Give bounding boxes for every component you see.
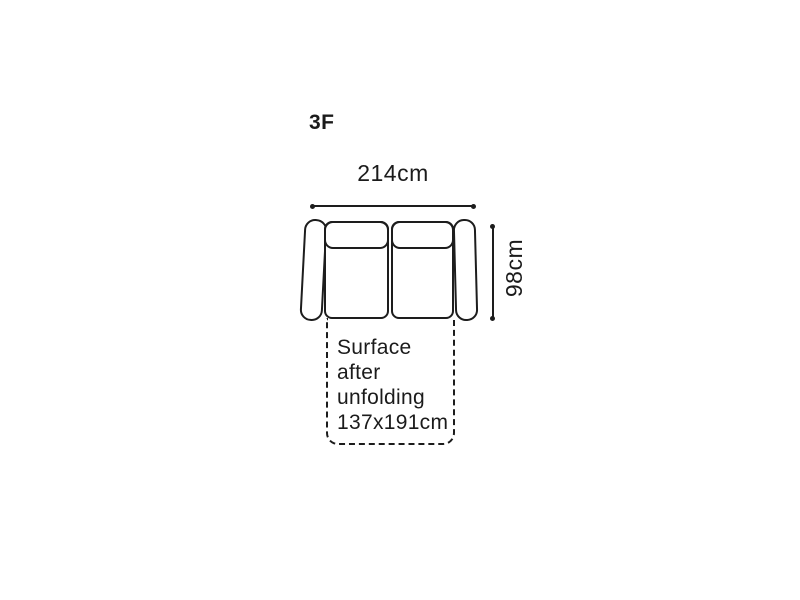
sofa-seat-left bbox=[324, 221, 389, 319]
sofa-back-cushion-right bbox=[391, 221, 454, 249]
width-dimension-label: 214cm bbox=[312, 160, 474, 187]
dimension-endpoint-dot bbox=[490, 224, 495, 229]
unfold-note-line: 137x191cm bbox=[337, 410, 448, 435]
width-dimension-line bbox=[312, 205, 474, 207]
model-label: 3F bbox=[309, 111, 335, 135]
sofa-dimension-diagram: 3F 214cm 98cm Surface after unfolding 13… bbox=[0, 0, 800, 600]
sofa-seat-right bbox=[391, 221, 454, 319]
dimension-endpoint-dot bbox=[310, 204, 315, 209]
unfold-note-line: Surface bbox=[337, 335, 448, 360]
unfold-surface-note: Surface after unfolding 137x191cm bbox=[337, 335, 448, 435]
depth-dimension-line bbox=[492, 226, 494, 319]
sofa-back-cushion-left bbox=[324, 221, 389, 249]
dimension-endpoint-dot bbox=[490, 316, 495, 321]
dimension-endpoint-dot bbox=[471, 204, 476, 209]
unfold-note-line: after bbox=[337, 360, 448, 385]
unfold-note-line: unfolding bbox=[337, 385, 448, 410]
sofa-armrest-right bbox=[453, 219, 479, 322]
depth-dimension-label: 98cm bbox=[501, 233, 525, 303]
